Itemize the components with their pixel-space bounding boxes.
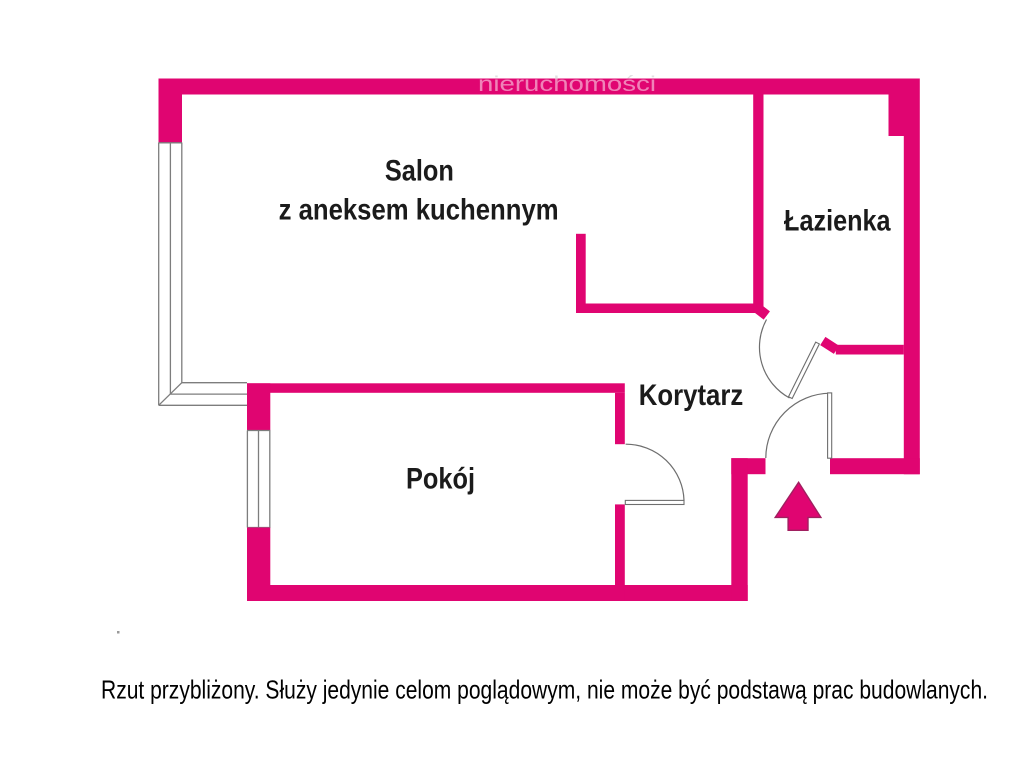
svg-text:Salon: Salon <box>385 155 454 188</box>
svg-text:z aneksem kuchennym: z aneksem kuchennym <box>279 193 559 226</box>
svg-text:Rzut przybliżony. Służy jedyni: Rzut przybliżony. Służy jedynie celom po… <box>101 674 988 704</box>
svg-text:Pokój: Pokój <box>406 463 475 496</box>
svg-text:Korytarz: Korytarz <box>639 379 744 412</box>
svg-text:Łazienka: Łazienka <box>784 205 891 238</box>
